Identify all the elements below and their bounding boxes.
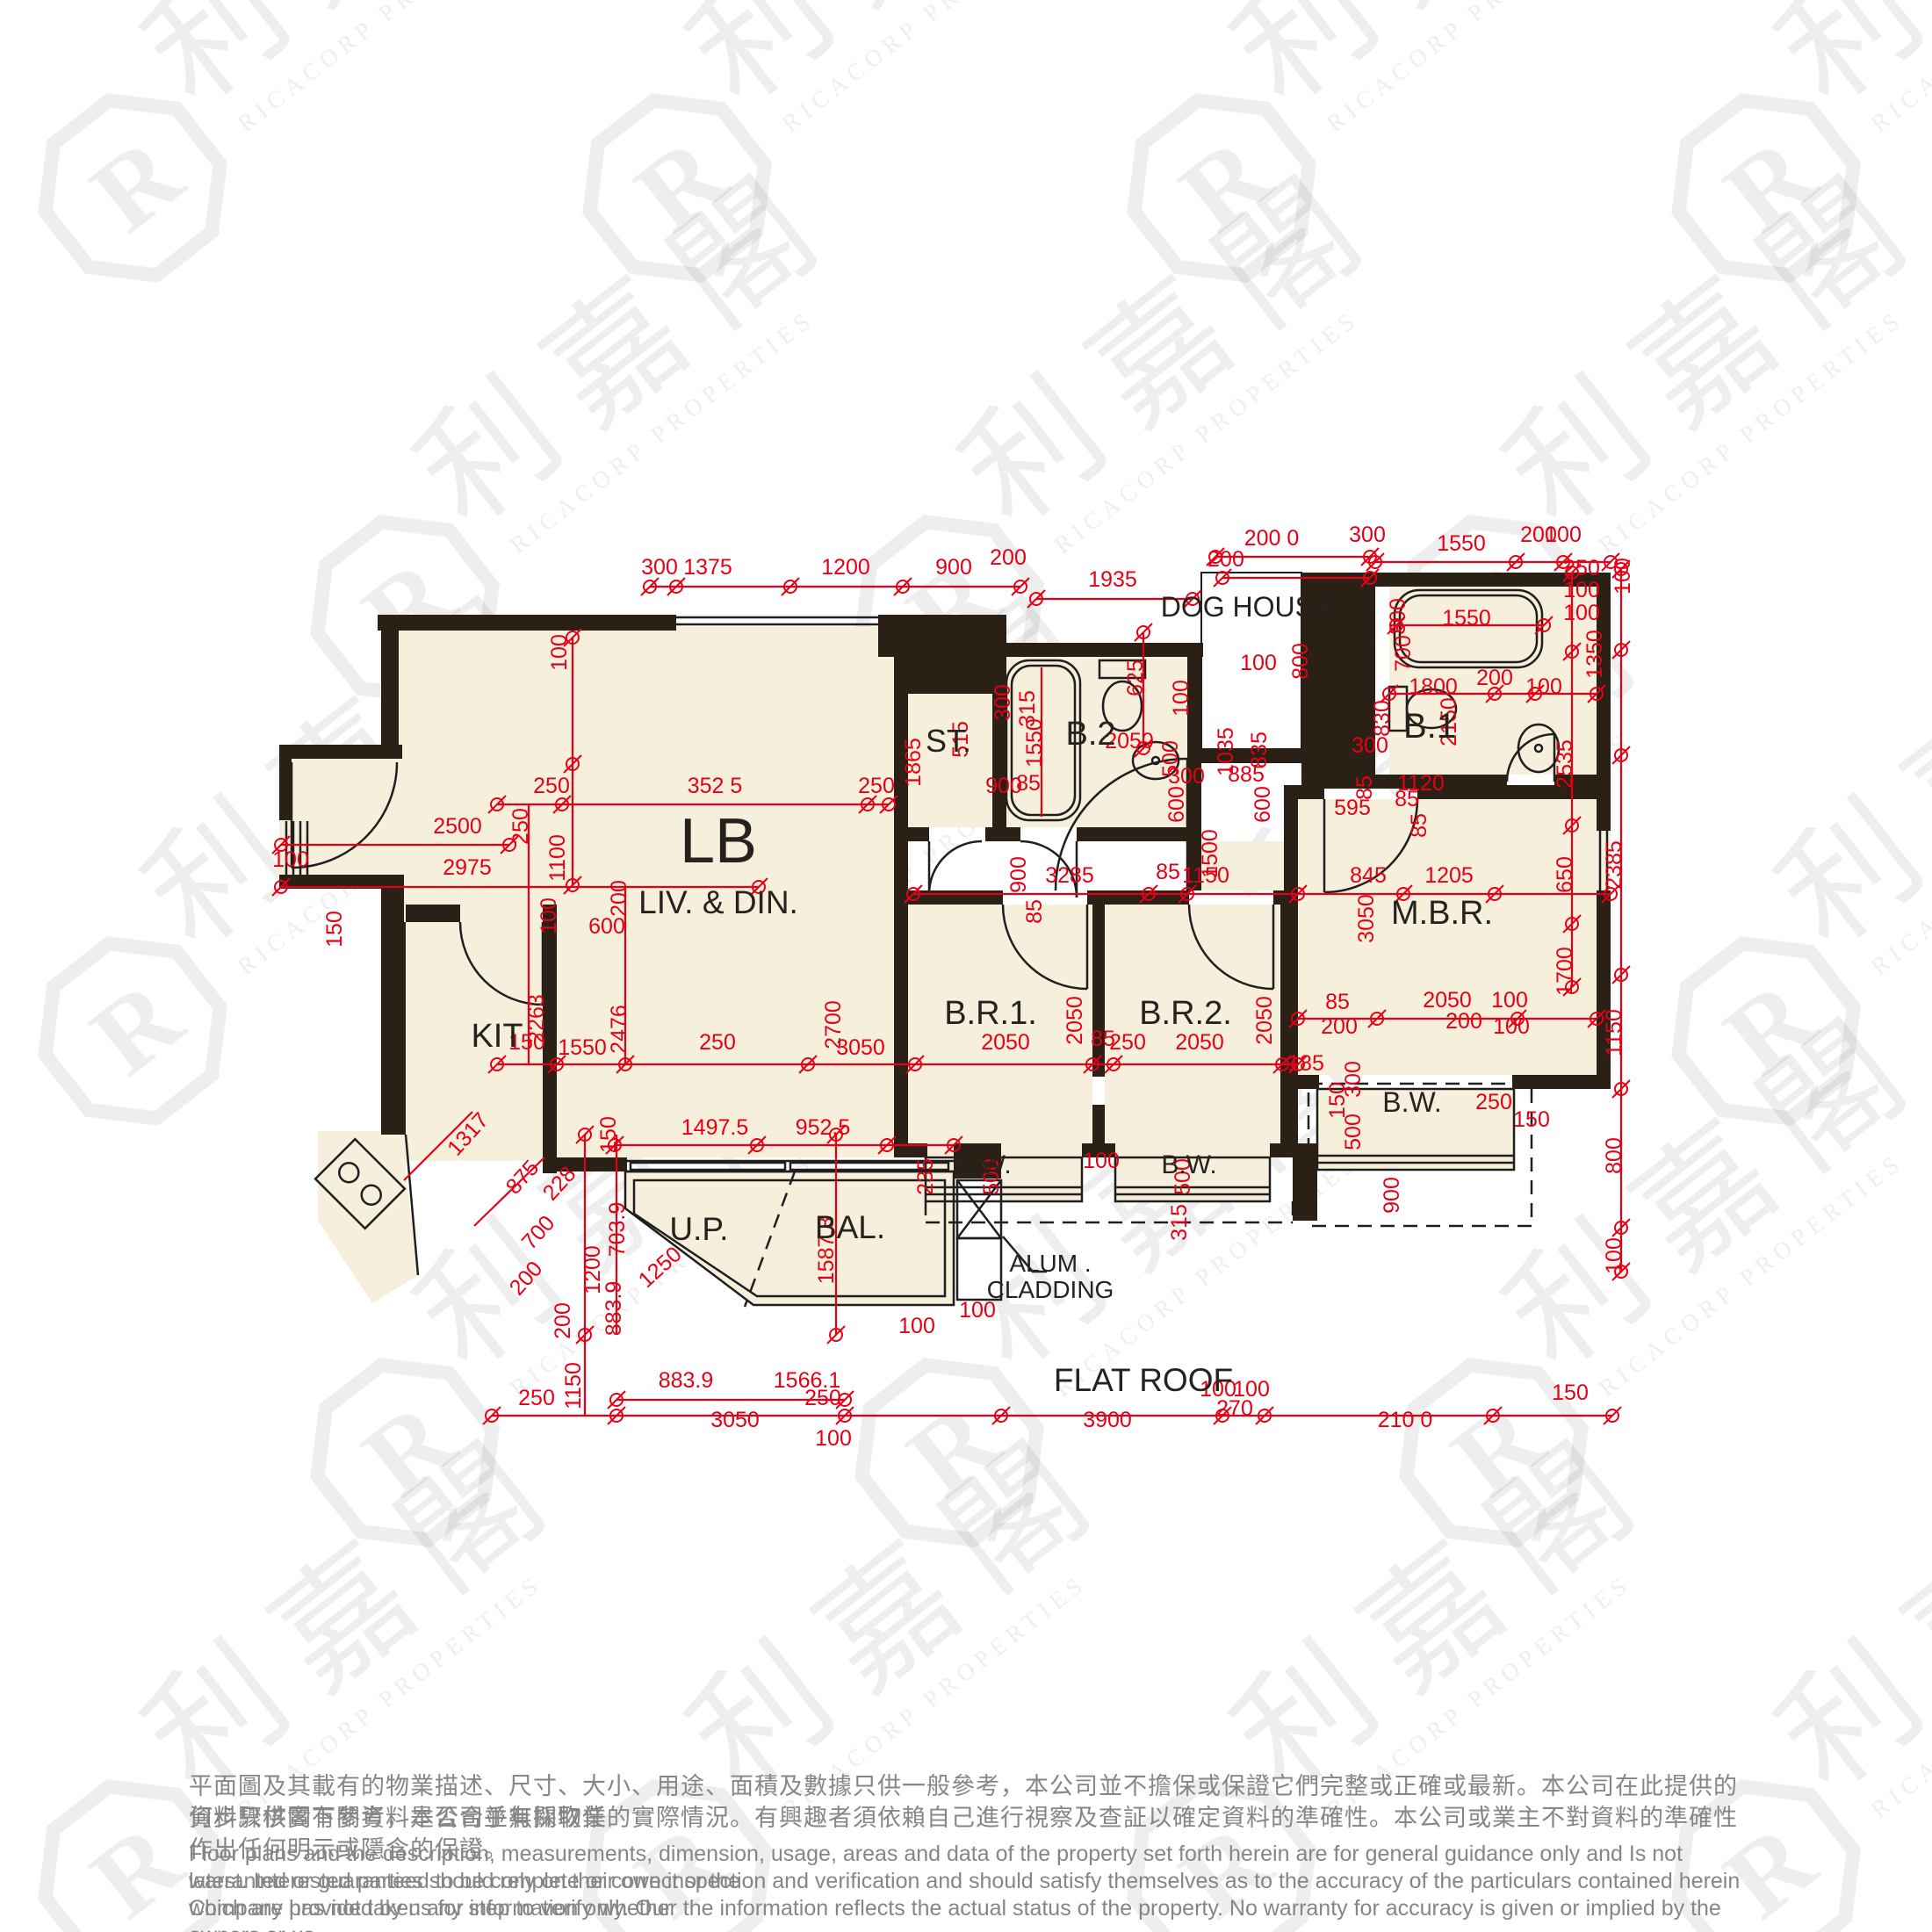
dimension-tick bbox=[1612, 966, 1630, 984]
dimension-label: 200 bbox=[1321, 1014, 1358, 1039]
room-label-b2: B.2 bbox=[1065, 716, 1115, 753]
dimension-label: 100 bbox=[1563, 578, 1600, 602]
ricacorp-watermark: 利嘉閣RICACORP PROPERTIESR bbox=[0, 0, 642, 305]
dimension-tick bbox=[1135, 624, 1152, 641]
svg-text:R: R bbox=[70, 957, 203, 1097]
dimension-label: 150 bbox=[596, 1116, 621, 1153]
dimension-label: 100 bbox=[1491, 988, 1528, 1013]
dimension-tick bbox=[827, 1326, 845, 1344]
dimension-label: 1497.5 bbox=[681, 1115, 748, 1140]
dimension-label: 300 bbox=[1341, 1061, 1366, 1098]
dimension-label: 250 bbox=[858, 774, 895, 798]
dimension-label: 2385 bbox=[1602, 840, 1626, 890]
dimension-label: 2050 bbox=[1063, 996, 1087, 1045]
dimension-tick bbox=[608, 1391, 625, 1409]
flat-roof-label: FLAT ROOF bbox=[1054, 1362, 1233, 1398]
dimension-label: 2476 bbox=[607, 1005, 631, 1054]
dimension-tick bbox=[1612, 1080, 1630, 1098]
dimension-label: 250 bbox=[533, 774, 570, 798]
dimension-label: 235 bbox=[913, 1158, 938, 1195]
room-label-bw: B.W. bbox=[1161, 1150, 1216, 1179]
room-label-mbr: M.B.R. bbox=[1391, 895, 1493, 932]
room-label-st: ST. bbox=[926, 723, 971, 759]
dimension-label: 3050 bbox=[710, 1408, 760, 1432]
room-label-lb: LB bbox=[680, 806, 757, 876]
dimension-label: 300 bbox=[1386, 598, 1410, 635]
dimension-label: 700 bbox=[1391, 635, 1416, 672]
dimension-label: 952.5 bbox=[796, 1115, 851, 1140]
dimension-label: 2535 bbox=[1553, 739, 1577, 789]
dimension-label: 1935 bbox=[1088, 567, 1137, 592]
room-label-up: U.P. bbox=[669, 1211, 728, 1247]
dimension-label: 200 bbox=[607, 880, 631, 917]
dimension-label: 200 0 bbox=[1244, 526, 1300, 551]
dimension-label: 300 bbox=[641, 555, 678, 580]
dimension-label: 200 bbox=[551, 1302, 575, 1339]
svg-text:R: R bbox=[70, 114, 203, 254]
dimension-label: 600 bbox=[1251, 786, 1275, 823]
dimension-label: 500 bbox=[1341, 1114, 1366, 1150]
dimension-label: 85 bbox=[1156, 860, 1180, 884]
dimension-tick bbox=[641, 578, 659, 595]
svg-text:利嘉閣: 利嘉閣 bbox=[1751, 1400, 1932, 1819]
dimension-label: 2050 bbox=[981, 1030, 1030, 1055]
dimension-label: 883.9 bbox=[659, 1368, 714, 1393]
dimension-label: 100 bbox=[1563, 601, 1600, 625]
dimension-label: 100 bbox=[1611, 558, 1635, 595]
dimension-label: 703.9 bbox=[605, 1202, 630, 1258]
dimension-label: 900 bbox=[935, 555, 972, 580]
dimension-label: 200 bbox=[990, 545, 1027, 570]
room-label-br1: B.R.1. bbox=[944, 995, 1037, 1032]
dimension-label: 85 bbox=[1407, 813, 1431, 838]
dimension-label: 1700 bbox=[1553, 947, 1577, 996]
dimension-label: 150 bbox=[1552, 1381, 1589, 1405]
dimension-label: 250 bbox=[1563, 556, 1600, 580]
dimension-label: 900 bbox=[1006, 856, 1031, 893]
room-label-br2: B.R.2. bbox=[1139, 995, 1232, 1032]
room-label-bal: BAL. bbox=[815, 1209, 885, 1245]
floor-plan-drawing: 利嘉閣RICACORP PROPERTIESR利嘉閣RICACORP PROPE… bbox=[0, 0, 1932, 1932]
dimension-label: 150 bbox=[322, 911, 347, 948]
dimension-tick bbox=[1179, 885, 1196, 903]
dimension-label: 3285 bbox=[1045, 863, 1094, 888]
dimension-label: 150 bbox=[1513, 1107, 1550, 1132]
dimension-label: 600 bbox=[1164, 786, 1189, 823]
dimension-label: 100 bbox=[1240, 651, 1277, 675]
alum-cladding-label-line2: CLADDING bbox=[987, 1276, 1114, 1303]
dimension-tick bbox=[1256, 1407, 1273, 1424]
disclaimer-en-line3: Company has not taken any step to verify… bbox=[189, 1895, 1761, 1932]
svg-text:R: R bbox=[70, 1800, 203, 1932]
dimension-label: 85 bbox=[1022, 899, 1047, 924]
dimension-label: 1865 bbox=[901, 738, 926, 787]
dimension-label: 100 bbox=[1602, 1237, 1626, 1274]
dimension-label: 300 bbox=[1168, 764, 1205, 789]
dimension-label: 250 bbox=[518, 1386, 555, 1410]
dimension-label: 885 bbox=[1228, 762, 1265, 787]
dimension-label: 1150 bbox=[1602, 1009, 1626, 1056]
dimension-label: 800 bbox=[1288, 643, 1313, 680]
dimension-label: 1550 bbox=[1442, 606, 1491, 631]
dimension-label: 1800 bbox=[1409, 674, 1458, 699]
dimension-label: 1200 bbox=[821, 555, 870, 580]
dimension-label: 650 bbox=[1553, 856, 1577, 893]
dimension-label: 900 bbox=[985, 774, 1022, 798]
dimension-label: 1550 bbox=[1022, 718, 1047, 768]
dog-house-label: DOG HOUS E bbox=[1161, 591, 1340, 623]
dimension-label: 845 bbox=[1350, 863, 1387, 888]
dimension-label: 1500 bbox=[1198, 829, 1222, 878]
dimension-label: 100 bbox=[1083, 1149, 1120, 1173]
dimension-label: 1550 bbox=[1437, 531, 1486, 556]
dimension-label: 250 bbox=[699, 1030, 736, 1055]
dimension-tick bbox=[1507, 553, 1525, 571]
dimension-label: 315 bbox=[1167, 1204, 1192, 1241]
alum-cladding-label-line1: ALUM . bbox=[1009, 1250, 1091, 1277]
dimension-tick bbox=[782, 578, 799, 595]
dimension-label: 100 bbox=[815, 1426, 852, 1451]
dimension-tick bbox=[1604, 1407, 1621, 1424]
dimension-label: 100 bbox=[1545, 523, 1582, 547]
dimension-label: 100 bbox=[547, 634, 572, 671]
dimension-label: 250 bbox=[1475, 1090, 1512, 1114]
dimension-label: 600 bbox=[588, 914, 625, 939]
dimension-label: 85 bbox=[1091, 1027, 1115, 1051]
dimension-label: 2050 bbox=[1175, 1030, 1224, 1055]
dimension-label: 100 bbox=[272, 847, 309, 872]
dimension-label: 85 bbox=[1352, 775, 1377, 800]
dimension-label: 2500 bbox=[433, 814, 482, 839]
room-label-b1: B.1 bbox=[1403, 707, 1456, 746]
dimension-label: 250 bbox=[508, 808, 533, 845]
dimension-label: 300 bbox=[991, 684, 1015, 721]
floor-plan-page: 利嘉閣RICACORP PROPERTIESR利嘉閣RICACORP PROPE… bbox=[0, 0, 1932, 1932]
dimension-label: 100 bbox=[1493, 1014, 1530, 1039]
dimension-label: 883.9 bbox=[602, 1281, 626, 1337]
dimension-label: 1350 bbox=[1582, 630, 1607, 679]
room-label-livdin: LIV. & DIN. bbox=[638, 884, 798, 920]
dimension-label: 2050 bbox=[1252, 996, 1277, 1045]
dimension-label: 200 bbox=[1445, 1009, 1482, 1034]
dimension-label: 900 bbox=[1380, 1177, 1404, 1214]
dimension-label: 85 bbox=[1395, 787, 1419, 811]
dimension-label: 1205 bbox=[1424, 863, 1474, 888]
dimension-tick bbox=[667, 578, 685, 595]
dimension-label: 800 bbox=[1602, 1137, 1626, 1174]
dimension-label: 1375 bbox=[683, 555, 732, 580]
dimension-label: 300 bbox=[1349, 523, 1386, 547]
dimension-label: 100 bbox=[1525, 674, 1562, 699]
room-label-kit: KIT bbox=[471, 1018, 523, 1055]
dimension-label: 3050 bbox=[1354, 894, 1379, 943]
dimension-label: 200 bbox=[1476, 666, 1513, 690]
dimension-tick bbox=[992, 1407, 1010, 1424]
dimension-label: 200 bbox=[1207, 547, 1244, 572]
dimension-label: 85 bbox=[1325, 990, 1350, 1014]
dimension-label: 352 5 bbox=[688, 774, 743, 798]
room-label-bw: B.W. bbox=[955, 1150, 1011, 1179]
dimension-label: 1100 bbox=[545, 834, 570, 882]
dimension-label: 210 0 bbox=[1378, 1408, 1433, 1432]
dimension-label: 3050 bbox=[836, 1035, 885, 1060]
dimension-label: 100 bbox=[537, 898, 561, 934]
dimension-label: 1550 bbox=[558, 1035, 607, 1060]
dimension-label: 2975 bbox=[443, 855, 492, 880]
room-label-bw: B.W. bbox=[1382, 1086, 1442, 1118]
dimension-label: 270 bbox=[1216, 1396, 1253, 1421]
dimension-label: 185 bbox=[1287, 1051, 1324, 1076]
dimension-label: 1150 bbox=[561, 1362, 586, 1409]
dimension-label: 250 bbox=[804, 1386, 841, 1410]
dimension-tick bbox=[608, 1407, 625, 1424]
svg-text:利嘉閣: 利嘉閣 bbox=[1751, 557, 1932, 976]
dimension-label: 3900 bbox=[1083, 1408, 1132, 1432]
dimension-label: 100 bbox=[898, 1314, 935, 1338]
dimension-label: 830 bbox=[1370, 700, 1395, 737]
dimension-label: 100 bbox=[1169, 680, 1193, 717]
dimension-label: 625 bbox=[1123, 660, 1148, 696]
